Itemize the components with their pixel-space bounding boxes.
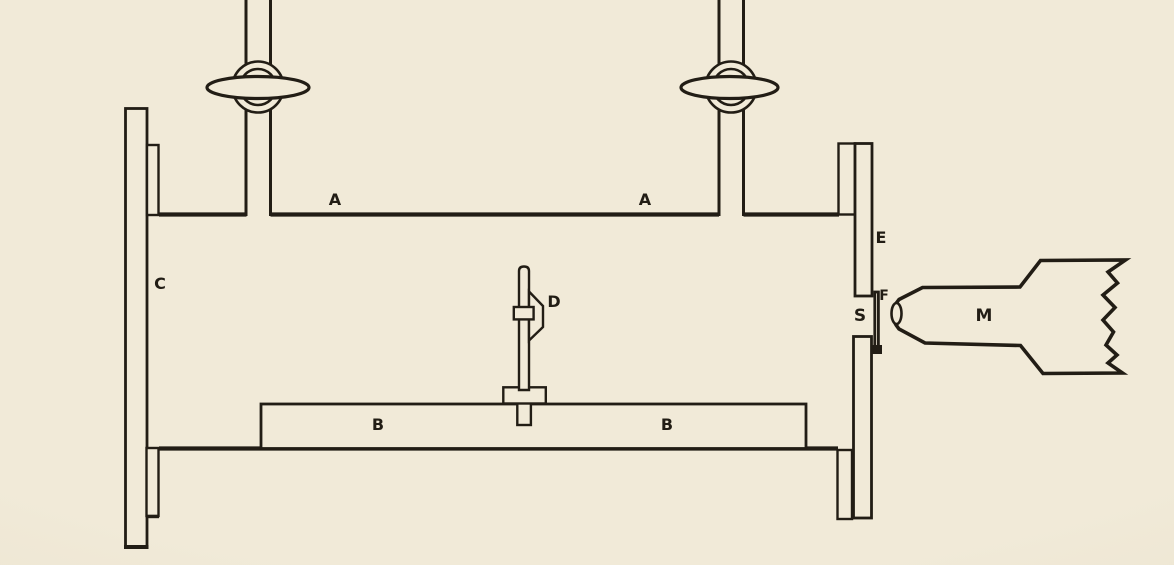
base-bar-b [261,404,806,449]
label-d: D [547,292,560,311]
end-plate-e [838,144,873,520]
end-plate-c [124,109,159,548]
ground-joint-disc [207,77,309,99]
stand-rod [519,267,529,391]
label-f: F [879,288,889,304]
label-b-left: B [372,415,384,434]
label-e: E [876,228,887,247]
plate-e-upper-strip [839,144,856,215]
pump-tube-left [207,0,309,216]
label-a-left: A [329,190,342,209]
figure-scan: A A C D B B E F S M [0,0,1174,565]
source-horn-m [892,260,1126,374]
plate-e-upper-body [855,144,872,297]
label-a-right: A [639,190,652,209]
horn-tip-aperture [892,303,902,324]
plate-c-upper-strip [147,145,159,215]
label-b-right: B [661,415,673,434]
apparatus-diagram: A A C D B B E F S M [0,0,1174,565]
plate-c-body [126,109,148,547]
plate-e-lower-strip [838,450,853,519]
label-c: C [154,274,166,293]
plate-e-lower-body [854,337,872,519]
plate-c-lower-strip [147,448,159,516]
label-m: M [976,306,993,326]
horn-outline [893,260,1126,374]
foil-strip-body [875,292,879,350]
stand-collar [514,307,534,319]
foil-strip-foot [871,346,882,354]
ground-joint-disc [681,77,778,99]
pump-tube-right [681,0,778,216]
label-s: S [854,306,866,326]
detector-stand-d [503,267,546,426]
